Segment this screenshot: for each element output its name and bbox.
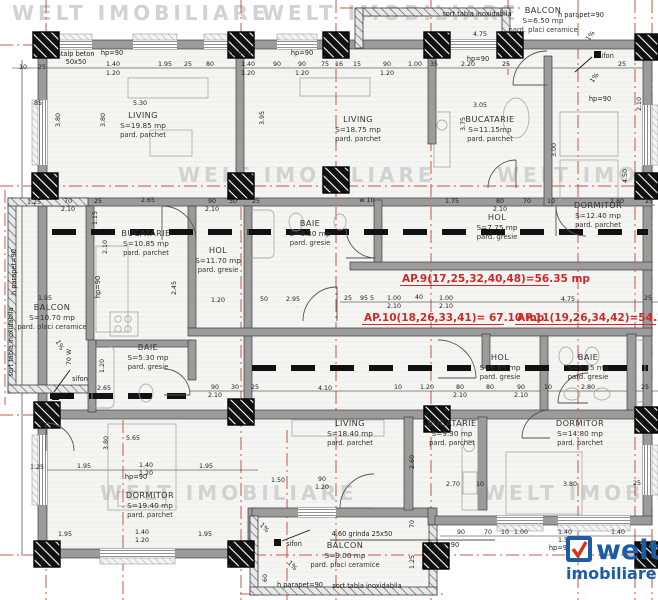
dimension-text: 90 [273,61,281,68]
room-name: LIVING [343,114,373,124]
dimension-text: 2.70 [446,481,460,488]
room-name: BALCON [525,5,561,15]
dimension-text: 1.95 [199,463,213,470]
annotation-text: hp=90 [229,49,251,57]
dimension-text: 1.25 [27,199,41,206]
dimension-text: 2.95 [286,296,300,303]
dimension-text: 2.10 [102,240,109,254]
dimension-text: 1.25 [30,464,44,471]
dimension-text: 10 [544,384,552,391]
dimension-text: 1.95 [198,531,212,538]
dimension-text: 2.60 [409,455,416,469]
annotation-text: hp=90 [125,473,147,481]
dimension-text: 5.65 [126,435,140,442]
sifon-marker [274,539,281,546]
dimension-text: 90 [457,529,465,536]
dimension-text: 70 [484,529,492,536]
room-name: BAIE [300,218,320,228]
room-name: BAIE [578,352,598,362]
dimension-text: 2.10 [205,206,219,213]
room-name: BALCON [327,540,363,550]
dimension-text: 75 [321,61,329,68]
room-floor: pard. gresie [290,239,331,247]
dimension-text: 25 [618,61,626,68]
dimension-text: 2.10 [453,392,467,399]
window [277,34,317,49]
window [643,445,658,495]
dimension-text: 10 [19,64,27,71]
dimension-text: 1.00 [514,529,528,536]
dimension-text: w 10 [359,197,374,204]
dimension-text: 2.10 [439,303,453,310]
dimension-text: 70 [64,198,72,205]
room-label-dormitor: DORMITORS=19.40 mppard. parchet [126,490,174,519]
watermark-text: WELT IMOBILIARE [12,1,270,25]
room-area: S=14.80 mp [557,429,603,438]
dimension-text: 40 [415,294,423,301]
dimension-text: 30 [231,384,239,391]
annotation-text: h parapet=90 [558,11,604,19]
apartment-label: AP.9(17,25,32,40,48)=56.35 mp [402,273,590,285]
annotation-text: sifon [72,375,88,383]
dimension-text: 90 [383,61,391,68]
dimension-text: 1.40 [558,529,572,536]
room-floor: pard. gresie [477,233,518,241]
dimension-text: 2.80 [581,384,595,391]
dimension-text: 25 [645,198,653,205]
dimension-text: 50 [260,296,268,303]
annotation-text: hp=90 [94,276,102,298]
room-area: S=6.30 mp [289,229,330,238]
dimension-text: 70 [409,520,416,528]
room-area: S=5.05 mp [567,363,608,372]
dimension-text: 25 [641,384,649,391]
room-name: HOL [488,212,506,222]
room-floor: pard. parchet [120,131,166,139]
dimension-text: 25 [184,61,192,68]
room-label-bucatarie: BUCATARIES=10.85 mppard. parchet [121,228,170,257]
dimension-text: 25 [38,64,46,71]
dimension-text: 2.10 [208,392,222,399]
dimension-text: 1.40 [106,61,120,68]
room-area: S=6.65 mp [479,363,520,372]
dimension-text: 2.10 [97,393,111,400]
annotation-text: sifon [598,52,614,60]
annotation-text: hp=90 [291,49,313,57]
room-name: DORMITOR [574,200,622,210]
dimension-text: 85 [34,100,42,107]
dimension-text: 5.30 [133,100,147,107]
dimension-text: 2.10 [387,303,401,310]
room-floor: pard. gresie [198,266,239,274]
room-area: S=10.85 mp [123,239,169,248]
dimension-text: 80 [206,61,214,68]
dimension-text: 1.40 [135,529,149,536]
room-label-dormitor: DORMITORS=14.80 mppard. parchet [556,418,604,447]
room-name: BUCATARIE [465,114,514,124]
dimension-text: 3.80 [103,436,110,450]
room-label-bucatarie: BUCATARIES=9.30 mppard. parchet [427,418,476,447]
room-label-bucatarie: BUCATARIES=11.15mppard. parchet [465,114,514,143]
dimension-text: 90 [211,384,219,391]
dimension-text: 1.00 [439,295,453,302]
dimension-text: 90 [318,476,326,483]
room-name: DORMITOR [556,418,604,428]
room-name: BUCATARIE [121,228,170,238]
room-area: S=11.15mp [468,125,512,134]
annotation-text: hp=90 [467,55,489,63]
dimension-text: 25 [94,198,102,205]
annotation-text: h parapet=90 [277,581,323,589]
dimension-text: 35 [430,61,438,68]
dimension-text: 4.50 [622,169,629,183]
room-floor: pard. parchet [327,439,373,447]
room-floor: pard. placi ceramice [310,561,379,569]
dimension-text: 4.10 [318,385,332,392]
dimension-text: 25 [644,295,652,302]
dimension-text: 1.20 [135,537,149,544]
room-floor: pard. placi ceramice [508,26,577,34]
dimension-text: 16 [335,61,343,68]
annotation-text: 50x50 [66,58,87,66]
room-floor: pard. gresie [568,373,609,381]
room-area: S=19.40 mp [127,501,173,510]
floor-plan-canvas: WELT IMOBILIAREWELT IMOBILIAREWELT IMOBI… [0,0,658,600]
annotation-text: sort tabla inoxidabila [7,307,15,376]
annotation-text: stalp beton [57,50,94,58]
annotation-text: hp=90 [589,95,611,103]
dimension-text: 90 [298,61,306,68]
room-label-dormitor: DORMITORS=12.40 mppard. parchet [574,200,622,229]
dimension-text: 10 [476,481,484,488]
dimension-text: 90 [208,198,216,205]
window [643,105,658,165]
logo-sub: imobiliare [566,564,657,583]
dimension-text: 1.20 [211,297,225,304]
window [32,100,47,165]
room-floor: pard. parchet [335,135,381,143]
dimension-text: 10 [501,529,509,536]
logo-word: welt [596,535,658,566]
dimension-text: 1.50 [271,477,285,484]
room-name: LIVING [335,418,365,428]
dimension-text: 95 5 [360,295,374,302]
annotation-text: hp=90 [101,49,123,57]
room-name: LIVING [128,110,158,120]
room-floor: pard. gresie [480,373,521,381]
dimension-text: 3.05 [473,102,487,109]
dimension-text: 1.20 [380,70,394,77]
window [100,549,175,564]
dimension-text: 1.25 [409,555,416,569]
room-floor: pard. parchet [429,439,475,447]
dimension-text: 2.10 [61,206,75,213]
dimension-text: 1.20 [241,70,255,77]
annotation-text: sort tabla inoxidabila [332,582,401,590]
dimension-text: 25 [344,295,352,302]
dimension-text: 10 [547,198,555,205]
room-floor: pard. parchet [557,439,603,447]
dimension-text: 1.00 [387,295,401,302]
room-area: S=7.75 mp [476,223,517,232]
dimension-text: 1.20 [106,70,120,77]
dimension-text: 2.10 [514,392,528,399]
dimension-text: 80 [496,198,504,205]
dimension-text: 3.00 [551,143,558,157]
room-name: BUCATARIE [427,418,476,428]
room-floor: pard. gresie [128,363,169,371]
dimension-text: 80 [456,384,464,391]
room-area: S=6.50 mp [522,16,563,25]
room-name: DORMITOR [126,490,174,500]
room-floor: pard. placi ceramice [17,323,86,331]
room-area: S=5.30 mp [127,353,168,362]
dimension-text: 1.95 [38,295,52,302]
dimension-text: 3.80 [55,113,62,127]
dimension-text: 30 [229,198,237,205]
dimension-text: 1.40 [139,462,153,469]
sifon-marker [52,393,59,400]
room-floor: pard. parchet [467,135,513,143]
room-area: S=12.40 mp [575,211,621,220]
dimension-text: 25 [633,480,641,487]
annotation-text: h parapet=90 [10,249,18,295]
room-name: BALCON [34,302,70,312]
dimension-text: 1.20 [295,70,309,77]
dimension-text: 1.20 [420,384,434,391]
dimension-text: 70 W [66,348,73,365]
dimension-text: 80 [486,384,494,391]
annotation-text: hp=90 [437,541,459,549]
dimension-text: 1.40 [241,61,255,68]
dimension-text: 1.15 [92,211,99,225]
dimension-text: 4.75 [561,296,575,303]
room-area: S=18.75 mp [335,125,381,134]
dimension-text: 1.00 [408,61,422,68]
dimension-text: 90 [517,384,525,391]
room-area: S=18.40 mp [327,429,373,438]
dimension-text: 60 [262,574,269,582]
room-area: S=9.00 mp [324,551,365,560]
annotation-text: sort tabla inoxidabila [442,10,511,18]
dimension-text: 4.75 [473,31,487,38]
dimension-text: 2.10 [636,97,643,111]
dimension-text: 1.20 [99,359,106,373]
dimension-text: 3.95 [259,111,266,125]
window [450,40,500,49]
annotation-text: sifon [286,540,302,548]
dimension-text: 2.65 [97,385,111,392]
dimension-text: 2.65 [141,197,155,204]
dimension-text: 25 [251,384,259,391]
dimension-text: 1.95 [158,61,172,68]
room-name: HOL [209,245,227,255]
dimension-text: 25 [502,61,510,68]
dimension-text: 70 [523,198,531,205]
window [298,508,336,517]
room-floor: pard. parchet [123,249,169,257]
dimension-text: 15 [353,61,361,68]
room-floor: pard. parchet [127,511,173,519]
window [133,34,177,49]
room-area: S=19.85 mp [120,121,166,130]
annotation-text: 4.60 grinda 25x50 [332,530,393,538]
floor-plan-drawing: WELT IMOBILIAREWELT IMOBILIAREWELT IMOBI… [0,0,658,600]
welt-logo: welt imobiliare [566,535,658,583]
room-name: HOL [491,352,509,362]
dimension-text: 25 [252,198,260,205]
dimension-text: 1.95 [77,463,91,470]
room-name: BAIE [138,342,158,352]
dimension-text: 1.20 [315,484,329,491]
room-area: S=11.70 mp [195,256,241,265]
dimension-text: 1.75 [445,198,459,205]
dimension-text: 3.80 [563,481,577,488]
dimension-text: 3.80 [100,113,107,127]
dimension-text: 1.95 [58,531,72,538]
dimension-text: 10 [394,384,402,391]
apartment-label: AP.11(19,26,34,42)=54.20 mp [517,312,658,324]
room-area: S=9.30 mp [431,429,472,438]
room-area: S=10.70 mp [29,313,75,322]
dimension-text: 2.45 [171,281,178,295]
room-floor: pard. parchet [575,221,621,229]
watermark-text: WELT IMOBILIARE [178,163,436,187]
